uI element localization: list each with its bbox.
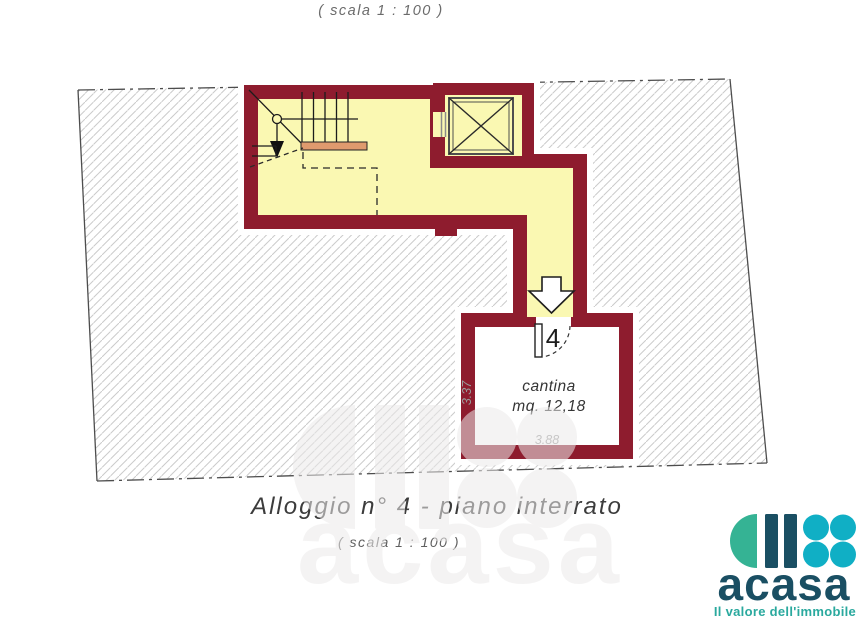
door-number: 4 — [546, 323, 560, 353]
stair-direction-origin — [273, 115, 282, 124]
elevator-shaft — [433, 83, 534, 168]
floorplan-page: ( scala 1 : 100 ) — [0, 0, 868, 622]
logo-brand-text: acasa — [718, 558, 851, 610]
watermark-dot — [457, 407, 517, 467]
door-leaf — [535, 324, 542, 357]
brand-logo: acasa Il valore dell'immobile — [714, 514, 856, 619]
dim-depth: 3.37 — [460, 380, 474, 405]
wall-stub — [435, 216, 457, 236]
logo-tagline: Il valore dell'immobile — [714, 604, 856, 619]
room-name: cantina — [522, 378, 575, 395]
floorplan-drawing: ( scala 1 : 100 ) — [0, 0, 868, 622]
watermark-dot — [517, 407, 577, 467]
watermark: acasa — [293, 405, 623, 607]
logo-dot — [803, 515, 829, 541]
stair-landing — [301, 142, 367, 150]
logo-dot — [830, 515, 856, 541]
top-scale-note: ( scala 1 : 100 ) — [318, 3, 443, 19]
watermark-text: acasa — [297, 484, 623, 607]
